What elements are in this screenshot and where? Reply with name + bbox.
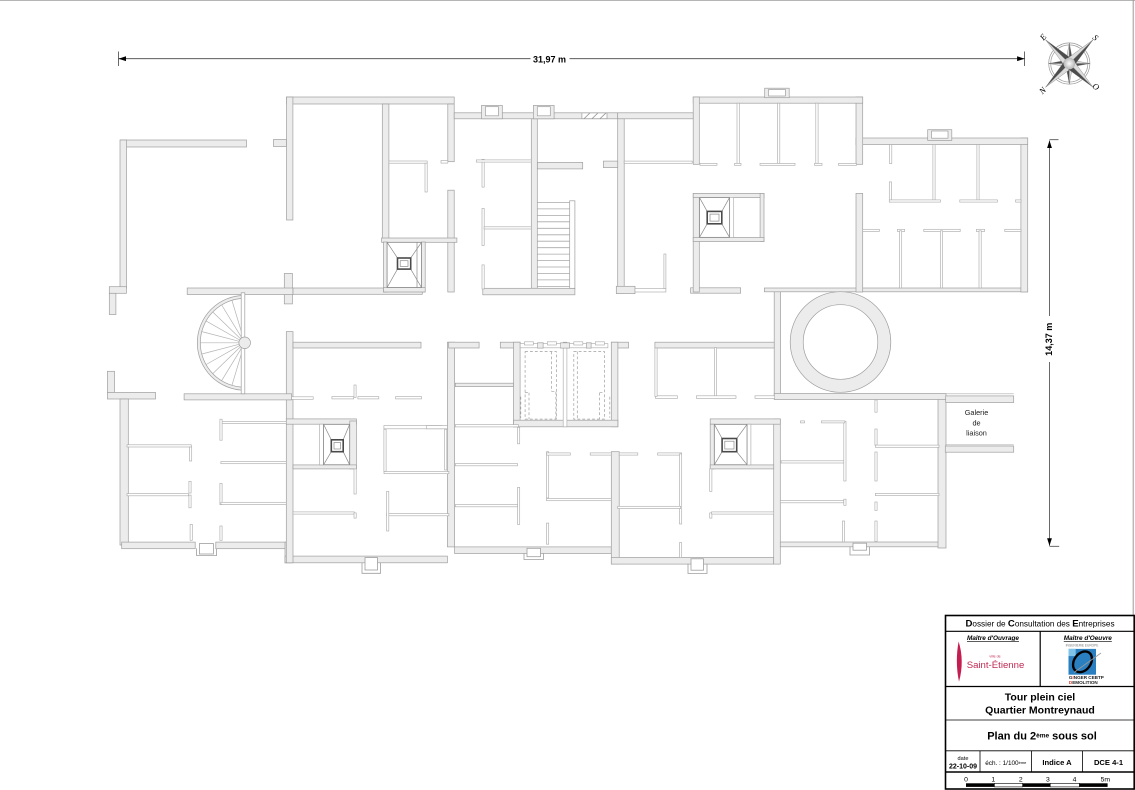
svg-text:Maître d'Oeuvre: Maître d'Oeuvre — [1064, 635, 1112, 642]
svg-text:Dossier de Consultation des En: Dossier de Consultation des Entreprises — [965, 619, 1114, 630]
svg-text:22-10-09: 22-10-09 — [949, 763, 977, 770]
svg-text:liaison: liaison — [966, 429, 987, 438]
svg-text:2: 2 — [1019, 776, 1023, 783]
svg-text:Quartier Montreynaud: Quartier Montreynaud — [985, 705, 1095, 717]
svg-text:DCE 4-1: DCE 4-1 — [1094, 758, 1124, 767]
svg-text:date: date — [958, 756, 969, 762]
svg-text:INGENIERIE EUROPE: INGENIERIE EUROPE — [1066, 643, 1099, 647]
svg-text:31,97 m: 31,97 m — [533, 54, 566, 64]
svg-text:5m: 5m — [1101, 776, 1111, 783]
svg-text:0: 0 — [964, 776, 968, 783]
svg-text:1: 1 — [991, 776, 995, 783]
svg-text:Indice A: Indice A — [1042, 758, 1072, 767]
svg-text:Galerie: Galerie — [965, 408, 989, 417]
svg-text:ville de: ville de — [989, 655, 1000, 659]
svg-text:14,37 m: 14,37 m — [1044, 323, 1054, 356]
svg-text:Saint-Étienne: Saint-Étienne — [967, 660, 1025, 671]
svg-text:Maître d'Ouvrage: Maître d'Ouvrage — [967, 635, 1019, 642]
svg-text:4: 4 — [1073, 776, 1077, 783]
svg-text:Tour plein ciel: Tour plein ciel — [1005, 692, 1075, 704]
svg-text:de: de — [972, 418, 980, 427]
svg-text:DEMOLITION: DEMOLITION — [1069, 680, 1099, 685]
svg-text:3: 3 — [1046, 776, 1050, 783]
